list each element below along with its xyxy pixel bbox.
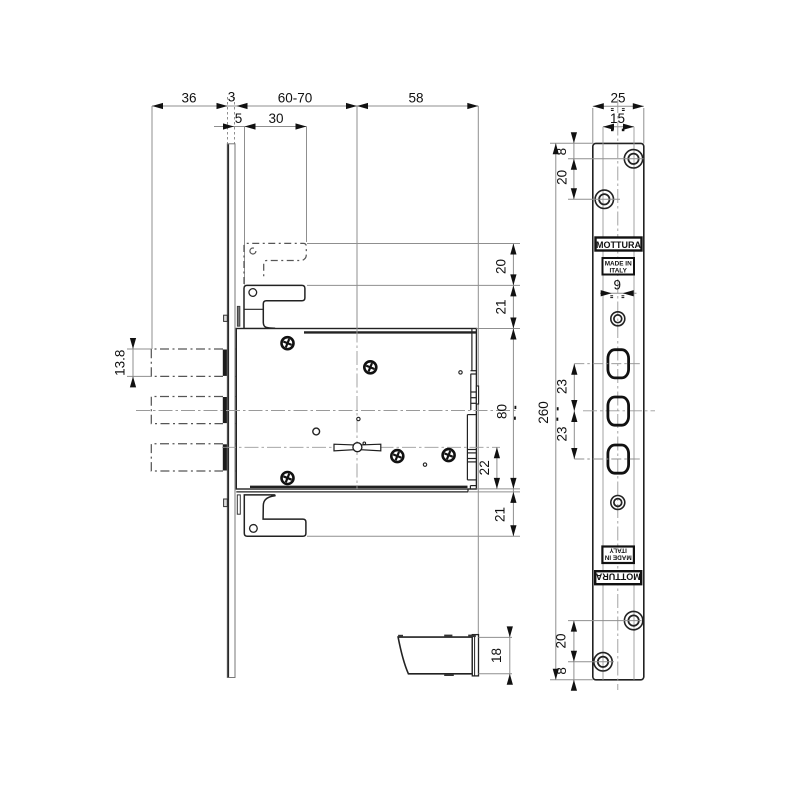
svg-text:260: 260	[536, 401, 551, 424]
svg-text:ITALY: ITALY	[609, 268, 627, 275]
svg-text:13.8: 13.8	[113, 350, 128, 376]
svg-text:18: 18	[489, 648, 504, 663]
svg-text:MOTTURA: MOTTURA	[595, 572, 640, 582]
svg-text:20: 20	[555, 170, 570, 185]
svg-text:20: 20	[494, 259, 509, 274]
svg-text:3: 3	[228, 90, 236, 105]
svg-text:9: 9	[614, 277, 622, 292]
svg-text:22: 22	[477, 460, 492, 475]
svg-text:8: 8	[554, 667, 569, 675]
svg-text:60-70: 60-70	[278, 91, 313, 106]
svg-text:30: 30	[268, 111, 283, 126]
svg-text:58: 58	[408, 91, 423, 106]
svg-text:80: 80	[495, 404, 510, 419]
svg-text:ITALY: ITALY	[609, 546, 627, 553]
svg-text:23: 23	[555, 379, 570, 394]
svg-text:36: 36	[181, 91, 196, 106]
svg-text:MOTTURA: MOTTURA	[596, 240, 641, 250]
svg-text:MADE IN: MADE IN	[605, 261, 632, 268]
svg-text:5: 5	[235, 111, 243, 126]
svg-text:21: 21	[493, 507, 508, 522]
svg-text:23: 23	[555, 426, 570, 441]
svg-text:MADE IN: MADE IN	[604, 553, 631, 560]
svg-text:8: 8	[554, 148, 569, 156]
svg-text:21: 21	[494, 299, 509, 314]
svg-text:20: 20	[554, 633, 569, 648]
